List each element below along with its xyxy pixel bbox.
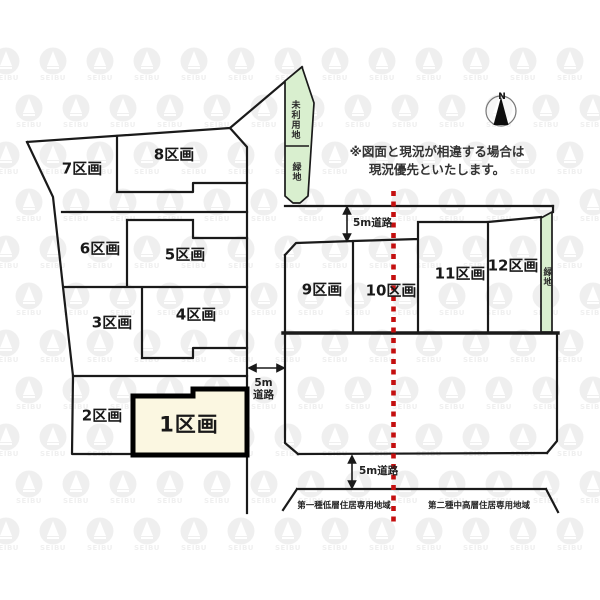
road-width-arrow-top <box>344 207 351 241</box>
plot-label-3: 3区画 <box>92 316 132 331</box>
road-label-left: 5m道路 <box>253 377 274 401</box>
green-label-greenbelt-top: 緑地 <box>290 162 303 182</box>
plot-label-8: 8区画 <box>154 148 194 163</box>
right-block-outline <box>285 206 557 454</box>
road-label-bottom: 5m道路 <box>359 465 398 477</box>
zoning-label-mid-high-rise: 第二種中高層住居専用地域 <box>428 499 530 511</box>
plot-label-12: 12区画 <box>488 259 539 274</box>
road-label-top: 5m道路 <box>353 217 392 229</box>
plot-label-11: 11区画 <box>435 267 486 282</box>
disclaimer-line-2: 現況優先といたします。 <box>350 161 525 179</box>
plot-label-4: 4区画 <box>176 308 216 323</box>
plot-label-5: 5区画 <box>165 248 205 263</box>
green-label-greenbelt-right: 緑地 <box>541 267 554 287</box>
compass-north-label: N <box>498 92 506 102</box>
compass-north-label-wrap: N <box>486 94 518 130</box>
disclaimer-line-1: ※図面と現況が相違する場合は <box>350 143 525 161</box>
road-width-arrow-bottom <box>349 456 356 488</box>
plot-label-6: 6区画 <box>80 242 120 257</box>
disclaimer-note: ※図面と現況が相違する場合は 現況優先といたします。 <box>350 143 525 179</box>
plot-label-10: 10区画 <box>366 284 417 299</box>
plot-map: SEIBUSEIBUSEIBUSEIBUSEIBUSEIBUSEIBUSEIBU… <box>0 0 600 600</box>
road-width-arrow-left <box>249 365 284 372</box>
plot-label-1: 1区画 <box>159 415 219 436</box>
plot-label-9: 9区画 <box>302 283 342 298</box>
zoning-label-low-rise: 第一種低層住居専用地域 <box>297 499 391 511</box>
plot-label-7: 7区画 <box>62 162 102 177</box>
plot-label-2: 2区画 <box>82 409 122 424</box>
green-label-unused-land: 未利用地 <box>289 100 302 140</box>
